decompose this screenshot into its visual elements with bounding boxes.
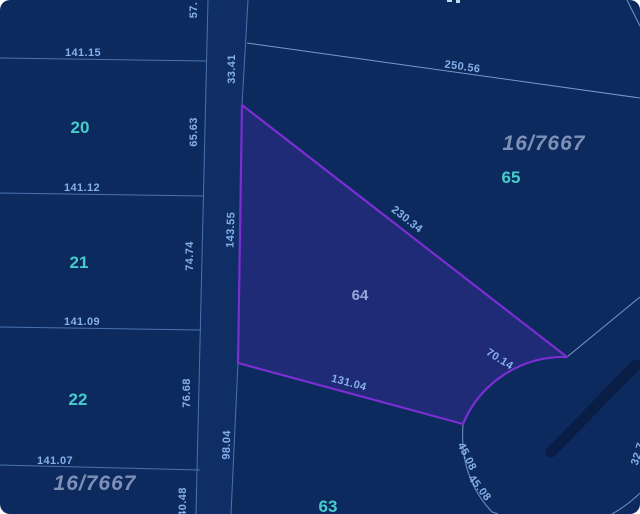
parcel-number-63: 63: [319, 497, 338, 514]
clipped-label-remnant: [447, 0, 460, 3]
parcel-number-64: 64: [352, 287, 369, 304]
boundary-line-141-15: [0, 58, 206, 61]
measurement-141-09: 141.09: [64, 316, 100, 328]
measurement-143-55: 143.55: [224, 212, 237, 248]
measurement-250-56: 250.56: [444, 59, 481, 76]
measurement-57: 57.: [188, 2, 200, 19]
measurement-141-15: 141.15: [65, 47, 101, 59]
measurement-45-08-a: 45.08: [455, 441, 479, 473]
district-label-right: 16/7667: [503, 132, 586, 155]
culdesac-arc-corner: [612, 493, 640, 514]
boundary-line-141-07: [0, 465, 200, 470]
map-canvas[interactable]: 141.15 141.12 141.09 141.07 57. 33.41 65…: [0, 0, 640, 514]
corner-line-top-right: [627, 0, 640, 26]
measurement-65-63: 65.63: [188, 117, 200, 147]
road-casing-bar: [551, 365, 636, 452]
measurement-40-48: 40.48: [177, 487, 189, 514]
boundary-line-141-12: [0, 193, 204, 196]
measurement-76-68: 76.68: [181, 378, 193, 408]
measurement-45-08-b: 45.08: [466, 473, 494, 504]
measurement-33-41: 33.41: [226, 54, 238, 84]
parcel-number-22: 22: [69, 390, 88, 409]
parcel-number-65: 65: [502, 168, 521, 187]
boundary-line-141-09: [0, 327, 201, 330]
line-from-right-vertex: [567, 297, 640, 357]
measurement-141-07: 141.07: [37, 455, 73, 467]
measurement-98-04: 98.04: [220, 429, 233, 459]
measurement-32-7: 32.7: [629, 441, 640, 467]
district-label-left: 16/7667: [54, 472, 137, 495]
measurement-141-12: 141.12: [64, 182, 100, 194]
parcel-number-20: 20: [71, 118, 90, 137]
map-window: 141.15 141.12 141.09 141.07 57. 33.41 65…: [0, 0, 640, 514]
boundary-line-250-56: [247, 43, 640, 98]
measurement-74-74: 74.74: [184, 241, 196, 271]
parcel-number-21: 21: [70, 253, 89, 272]
